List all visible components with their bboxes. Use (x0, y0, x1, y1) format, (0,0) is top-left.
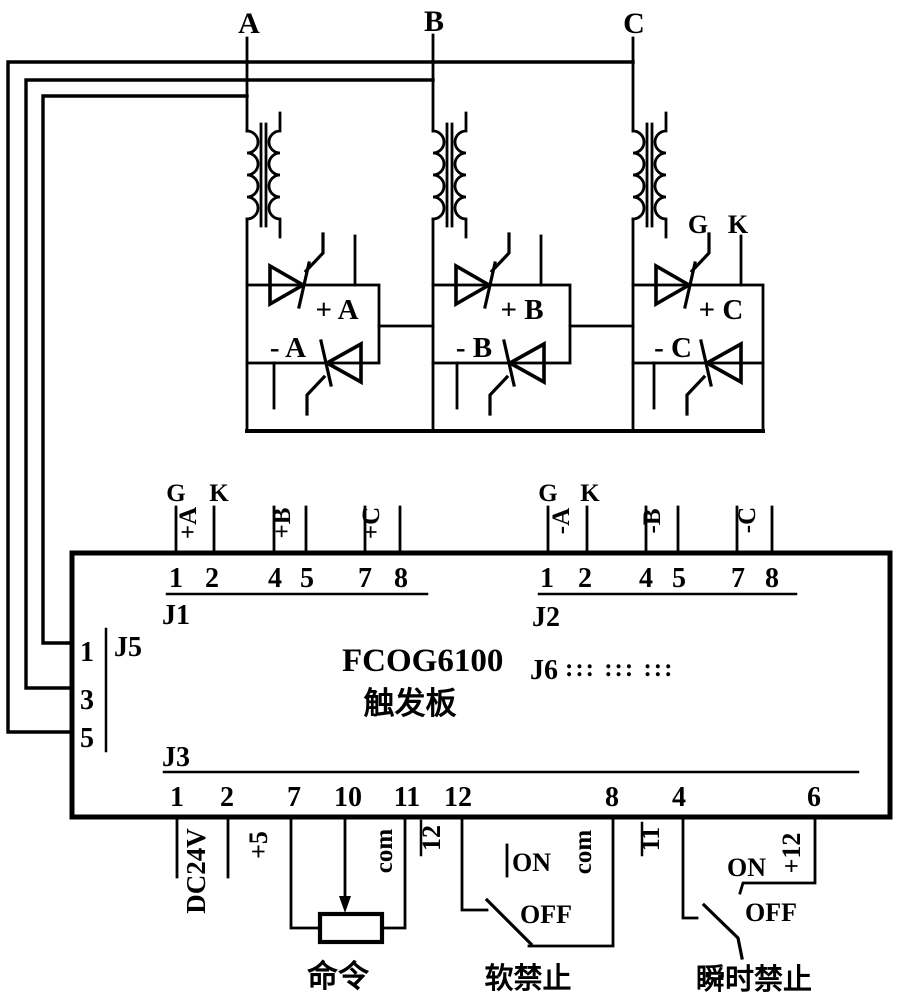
inv12-label: 12 (417, 825, 446, 851)
j6-label: J6 (530, 655, 558, 686)
j1-pin-number: 7 (358, 563, 372, 594)
board-subtitle: 触发板 (364, 686, 457, 721)
gate-label-c: G (688, 210, 708, 239)
j2-label: J2 (532, 602, 560, 633)
j2-pin-number: 4 (639, 563, 653, 594)
j3-pin-number: 4 (672, 782, 686, 813)
j2-gate-label: G (538, 480, 557, 507)
j1-pin-number: 1 (169, 563, 183, 594)
j2-signal-minus-a: -A (548, 508, 575, 534)
schematic-page: A B C G K + A - A + B - B + C - C (0, 0, 899, 1002)
module-c-pos-label: + C (699, 294, 744, 326)
soft-inhibit-caption: 软禁止 (484, 962, 571, 995)
module-b-pos-label: + B (500, 294, 543, 326)
j2-pin-number: 7 (731, 563, 745, 594)
j3-label: J3 (162, 742, 190, 773)
instant-on-label: ON (727, 853, 766, 882)
inv11-label: 11 (636, 827, 665, 852)
instant-off-label: OFF (745, 898, 797, 927)
j2-pin-number: 8 (765, 563, 779, 594)
j3-pin-number: 12 (444, 782, 472, 813)
soft-off-label: OFF (520, 900, 572, 929)
phase-b-label: B (424, 5, 444, 38)
dc24v-label: DC24V (181, 828, 211, 914)
plus5-label: +5 (244, 831, 273, 859)
j1-signal-plus-b: +B (269, 508, 296, 539)
j1-pin-number: 8 (394, 563, 408, 594)
j5-pin-number: 3 (80, 685, 94, 716)
j3-pin-number: 2 (220, 782, 234, 813)
j1-pin-number: 4 (268, 563, 282, 594)
j1-label: J1 (162, 600, 190, 631)
j3-pin-number: 7 (287, 782, 301, 813)
module-b-neg-label: - B (456, 332, 492, 364)
j3-pin-number: 8 (605, 782, 619, 813)
j5-pin-number: 5 (80, 723, 94, 754)
j2-signal-minus-c: -C (734, 507, 761, 533)
j5-pin-number: 1 (80, 637, 94, 668)
j2-pin-number: 5 (672, 563, 686, 594)
j1-signal-plus-c: +C (358, 507, 385, 539)
module-a-neg-label: - A (270, 332, 306, 364)
j6-jumper-dots: ::: ::: ::: (565, 655, 674, 682)
j2-signal-minus-b: -B (639, 509, 666, 534)
j1-pin-number: 5 (300, 563, 314, 594)
j1-cathode-label: K (209, 480, 229, 507)
phase-c-label: C (623, 7, 645, 40)
j3-pin-number: 11 (394, 782, 420, 813)
j3-pin-number: 6 (807, 782, 821, 813)
module-a-pos-label: + A (315, 294, 358, 326)
phase-a-label: A (238, 7, 260, 40)
trigger-board-schematic: A B C G K + A - A + B - B + C - C (0, 0, 899, 1002)
j1-pin-number: 2 (205, 563, 219, 594)
plus12-label: +12 (777, 833, 806, 874)
j3-pin-number: 10 (334, 782, 362, 813)
com-label-command: com (371, 829, 398, 874)
module-c-neg-label: - C (654, 332, 692, 364)
instant-inhibit-caption: 瞬时禁止 (696, 963, 812, 996)
j2-cathode-label: K (580, 480, 600, 507)
connector-j6: J6 ::: ::: ::: (530, 655, 674, 686)
com-label-soft: com (570, 830, 597, 875)
j1-gate-label: G (166, 480, 185, 507)
background (0, 0, 899, 1002)
command-caption: 命令 (307, 959, 370, 994)
board-name: FCOG6100 (342, 643, 503, 679)
cathode-label-c: K (728, 210, 749, 239)
soft-on-label: ON (512, 848, 551, 877)
j3-pin-number: 1 (170, 782, 184, 813)
j1-signal-plus-a: +A (175, 507, 202, 539)
j2-pin-number: 1 (540, 563, 554, 594)
j2-pin-number: 2 (578, 563, 592, 594)
j5-label: J5 (114, 632, 142, 663)
